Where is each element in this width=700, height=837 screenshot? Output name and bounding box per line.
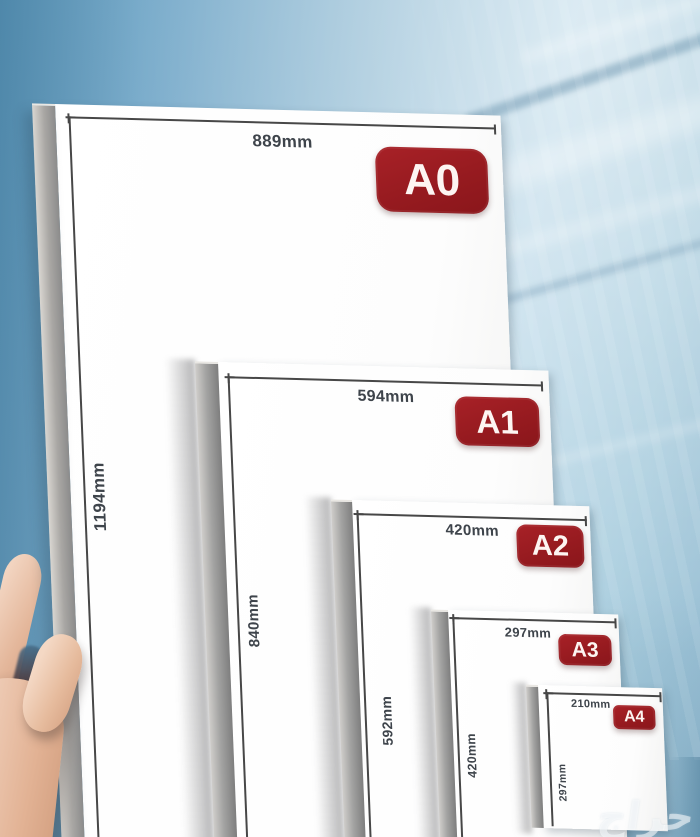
paper-size-comparison-image: 889mm 1194mm A0 594mm 840mm A1 420mm 592… — [0, 0, 700, 837]
width-dimension-line-a4 — [545, 692, 661, 697]
height-label-a4: 297mm — [552, 760, 574, 805]
size-badge-a2: A2 — [516, 524, 585, 568]
size-badge-a3: A3 — [558, 634, 612, 666]
height-label-a2: 592mm — [376, 689, 399, 752]
height-label-a1: 840mm — [243, 587, 266, 654]
size-badge-a4: A4 — [613, 705, 656, 730]
size-badge-a0: A0 — [375, 146, 490, 214]
height-label-a3: 420mm — [461, 728, 483, 783]
width-dimension-line-a3 — [452, 617, 616, 623]
watermark-logo: حراج — [595, 797, 697, 837]
height-dimension-line-a4 — [546, 692, 553, 826]
size-badge-a1: A1 — [454, 396, 540, 447]
height-label-a0: 1194mm — [88, 456, 111, 537]
